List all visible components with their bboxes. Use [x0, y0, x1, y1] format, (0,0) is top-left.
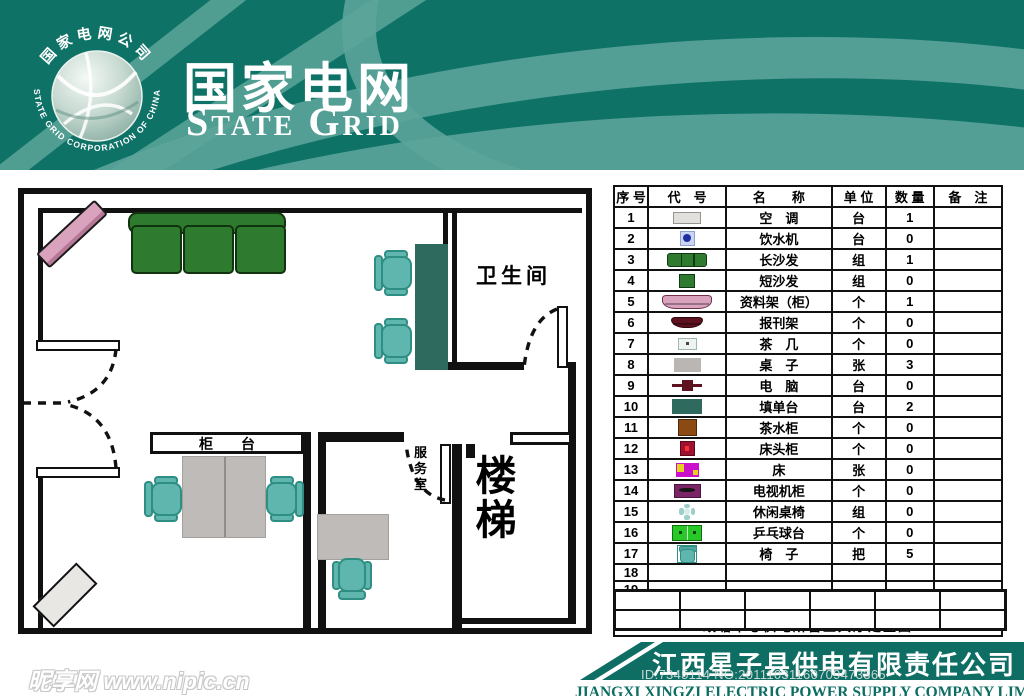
- legend-remark: [934, 522, 1002, 543]
- legend-unit: 个: [832, 291, 886, 312]
- legend-symbol: [648, 270, 726, 291]
- legend-header-cell: 名 称: [726, 186, 831, 207]
- legend-no: 1: [614, 207, 648, 228]
- legend-unit: 个: [832, 333, 886, 354]
- footer-cell: [940, 610, 1005, 629]
- service-desk: [317, 514, 389, 560]
- legend-no: 12: [614, 438, 648, 459]
- legend-row: 17椅 子把5: [614, 543, 1002, 564]
- chair: [144, 476, 182, 522]
- legend-qty: 0: [886, 417, 934, 438]
- footer-cell: [680, 591, 745, 610]
- footer-cell: [745, 591, 810, 610]
- company-name-en: JIANGXI XINGZI ELECTRIC POWER SUPPLY COM…: [575, 684, 1024, 696]
- legend-name: 乒乓球台: [726, 522, 831, 543]
- legend-symbol: [648, 375, 726, 396]
- footer-cell: [940, 591, 1005, 610]
- footer-cell: [875, 610, 940, 629]
- chair: [374, 250, 412, 296]
- legend-symbol: [648, 522, 726, 543]
- legend-no: 2: [614, 228, 648, 249]
- legend-symbol: [648, 249, 726, 270]
- legend-footer-grid: [613, 589, 1007, 631]
- legend-unit: 张: [832, 459, 886, 480]
- legend-no: 4: [614, 270, 648, 291]
- legend-row: 13床张0: [614, 459, 1002, 480]
- legend-symbol: [648, 543, 726, 564]
- legend-no: 13: [614, 459, 648, 480]
- legend-qty: 0: [886, 459, 934, 480]
- legend-symbol: [648, 480, 726, 501]
- legend-name: 短沙发: [726, 270, 831, 291]
- legend-unit: 个: [832, 522, 886, 543]
- legend-unit: 组: [832, 249, 886, 270]
- long-sofa: [128, 212, 286, 274]
- legend-symbol: [648, 312, 726, 333]
- legend-name: 长沙发: [726, 249, 831, 270]
- legend-name: 电视机柜: [726, 480, 831, 501]
- legend-qty: 1: [886, 249, 934, 270]
- top-banner: 国家电网公司 STATE GRID CORPORATION OF CHINA 国…: [0, 0, 1024, 170]
- legend-header-cell: 数 量: [886, 186, 934, 207]
- legend-name: [726, 564, 831, 581]
- legend-qty: 0: [886, 228, 934, 249]
- legend-no: 15: [614, 501, 648, 522]
- legend-row: 5资料架（柜）个1: [614, 291, 1002, 312]
- footer-cell: [745, 610, 810, 629]
- stairs-label: 楼梯: [474, 454, 518, 542]
- legend-name: 床: [726, 459, 831, 480]
- legend-name: 报刊架: [726, 312, 831, 333]
- legend-qty: 0: [886, 480, 934, 501]
- legend-name: 桌 子: [726, 354, 831, 375]
- legend-remark: [934, 270, 1002, 291]
- footer-cell: [810, 610, 875, 629]
- legend-name: 填单台: [726, 396, 831, 417]
- legend-qty: 0: [886, 501, 934, 522]
- legend-row: 14电视机柜个0: [614, 480, 1002, 501]
- legend-qty: 1: [886, 291, 934, 312]
- legend-qty: 0: [886, 270, 934, 291]
- footer-cell: [680, 610, 745, 629]
- legend-symbol: [648, 396, 726, 417]
- legend-header-cell: 备 注: [934, 186, 1002, 207]
- legend-name: 椅 子: [726, 543, 831, 564]
- legend-row: 16乒乓球台个0: [614, 522, 1002, 543]
- legend-qty: 3: [886, 354, 934, 375]
- legend-name: 休闲桌椅: [726, 501, 831, 522]
- legend-name: 资料架（柜）: [726, 291, 831, 312]
- legend-row: 1空 调台1: [614, 207, 1002, 228]
- legend-no: 8: [614, 354, 648, 375]
- legend-row: 2饮水机台0: [614, 228, 1002, 249]
- legend-no: 6: [614, 312, 648, 333]
- state-grid-logo-icon: 国家电网公司 STATE GRID CORPORATION OF CHINA: [18, 14, 176, 170]
- legend-remark: [934, 480, 1002, 501]
- legend-header-cell: 代 号: [648, 186, 726, 207]
- legend-unit: 台: [832, 396, 886, 417]
- legend-symbol: [648, 207, 726, 228]
- id-watermark: ID:7345114 NO:20111031160709473365: [641, 667, 886, 682]
- floor-plan: 柜 台 卫生间 服务室 楼梯: [18, 188, 592, 634]
- legend-remark: [934, 459, 1002, 480]
- legend-table: 序 号代 号名 称单 位数 量备 注 1空 调台12饮水机台03长沙发组14短沙…: [613, 185, 1003, 637]
- legend-no: 3: [614, 249, 648, 270]
- footer-cell: [810, 591, 875, 610]
- legend-unit: 个: [832, 438, 886, 459]
- legend-remark: [934, 249, 1002, 270]
- legend-remark: [934, 543, 1002, 564]
- legend-remark: [934, 228, 1002, 249]
- service-room-label: 服务室: [414, 445, 429, 493]
- legend-row: 10填单台台2: [614, 396, 1002, 417]
- legend-symbol: [648, 333, 726, 354]
- legend-row: 11茶水柜个0: [614, 417, 1002, 438]
- legend-name: 茶水柜: [726, 417, 831, 438]
- legend-remark: [934, 207, 1002, 228]
- legend-unit: 个: [832, 312, 886, 333]
- legend-remark: [934, 396, 1002, 417]
- legend-unit: 组: [832, 270, 886, 291]
- legend-unit: 个: [832, 417, 886, 438]
- legend-name: 茶 几: [726, 333, 831, 354]
- legend-row: 15休闲桌椅组0: [614, 501, 1002, 522]
- legend-qty: 0: [886, 375, 934, 396]
- legend-remark: [934, 333, 1002, 354]
- legend-remark: [934, 501, 1002, 522]
- legend-unit: 张: [832, 354, 886, 375]
- legend-symbol: [648, 228, 726, 249]
- bathroom-label: 卫生间: [476, 260, 551, 290]
- legend-qty: 5: [886, 543, 934, 564]
- legend-name: 床头柜: [726, 438, 831, 459]
- legend-remark: [934, 312, 1002, 333]
- legend-qty: [886, 564, 934, 581]
- legend-symbol: [648, 438, 726, 459]
- legend-unit: [832, 564, 886, 581]
- legend-qty: 0: [886, 522, 934, 543]
- chair: [266, 476, 304, 522]
- legend-no: 7: [614, 333, 648, 354]
- poster-page: 国家电网公司 STATE GRID CORPORATION OF CHINA 国…: [0, 0, 1024, 696]
- legend-remark: [934, 291, 1002, 312]
- legend-no: 18: [614, 564, 648, 581]
- legend-no: 16: [614, 522, 648, 543]
- legend-remark: [934, 375, 1002, 396]
- legend-unit: 个: [832, 480, 886, 501]
- legend-unit: 组: [832, 501, 886, 522]
- chair: [332, 558, 372, 600]
- footer-cell: [875, 591, 940, 610]
- legend-qty: 1: [886, 207, 934, 228]
- legend-row: 7茶 几个0: [614, 333, 1002, 354]
- legend-remark: [934, 417, 1002, 438]
- legend-symbol: [648, 459, 726, 480]
- legend-unit: 把: [832, 543, 886, 564]
- brand-title-en: State Grid: [186, 98, 403, 145]
- legend-remark: [934, 564, 1002, 581]
- legend-name: 空 调: [726, 207, 831, 228]
- legend-row: 3长沙发组1: [614, 249, 1002, 270]
- form-filling-table: [415, 244, 448, 370]
- legend-header-cell: 序 号: [614, 186, 648, 207]
- nipic-watermark: 昵享网 www.nipic.cn: [28, 662, 250, 696]
- legend-qty: 0: [886, 333, 934, 354]
- footer-cell: [615, 610, 680, 629]
- legend-name: 饮水机: [726, 228, 831, 249]
- door-swing-arcs: [18, 188, 592, 634]
- legend-row: 4短沙发组0: [614, 270, 1002, 291]
- footer-cell: [615, 591, 680, 610]
- legend-symbol: [648, 501, 726, 522]
- legend-remark: [934, 354, 1002, 375]
- legend-unit: 台: [832, 207, 886, 228]
- legend-qty: 0: [886, 312, 934, 333]
- legend-row: 12床头柜个0: [614, 438, 1002, 459]
- legend-qty: 0: [886, 438, 934, 459]
- legend-row: 6报刊架个0: [614, 312, 1002, 333]
- legend-qty: 2: [886, 396, 934, 417]
- legend-no: 10: [614, 396, 648, 417]
- legend-symbol: [648, 564, 726, 581]
- legend-no: 9: [614, 375, 648, 396]
- counter-desks: [182, 456, 266, 538]
- legend-symbol: [648, 291, 726, 312]
- legend-symbol: [648, 354, 726, 375]
- legend-no: 11: [614, 417, 648, 438]
- legend-row: 8桌 子张3: [614, 354, 1002, 375]
- legend-no: 14: [614, 480, 648, 501]
- legend-unit: 台: [832, 228, 886, 249]
- legend-no: 17: [614, 543, 648, 564]
- legend-header-cell: 单 位: [832, 186, 886, 207]
- legend-row: 9电 脑台0: [614, 375, 1002, 396]
- legend-row: 18: [614, 564, 1002, 581]
- legend-remark: [934, 438, 1002, 459]
- legend-name: 电 脑: [726, 375, 831, 396]
- legend-header-row: 序 号代 号名 称单 位数 量备 注: [614, 186, 1002, 207]
- legend-unit: 台: [832, 375, 886, 396]
- legend-no: 5: [614, 291, 648, 312]
- legend-symbol: [648, 417, 726, 438]
- counter-label: 柜 台: [150, 434, 304, 454]
- chair: [374, 318, 412, 364]
